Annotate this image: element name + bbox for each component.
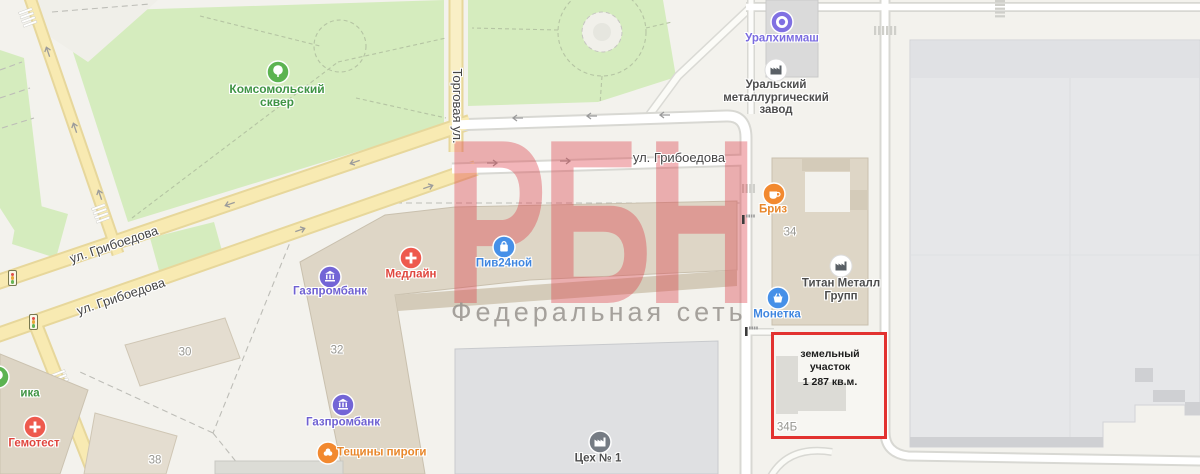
piv24-bag-icon[interactable] [492,235,516,259]
traffic-light-icon [8,270,17,286]
building-number-32: 32 [331,345,344,358]
medline-cross-icon[interactable] [399,246,423,270]
gazprombank-north-label[interactable]: Газпромбанк [293,286,367,299]
gazprombank-south-label[interactable]: Газпромбанк [306,417,380,430]
briz-label[interactable]: Бриз [759,204,787,217]
building-number-34b: 34Б [777,422,797,435]
gemotest-cross-icon[interactable] [23,415,47,439]
uralhimmash-label[interactable]: Уралхиммаш [745,33,819,46]
clinic-partial-icon[interactable] [0,365,10,389]
uralhimmash-icon[interactable] [770,10,794,34]
gazprombank-south-icon[interactable] [331,393,355,417]
titan-label[interactable]: Титан МеталлГрупп [802,277,880,302]
gemotest-label[interactable]: Гемотест [8,438,59,451]
street-label-griboedova-upper: ул. Грибоедова [68,224,160,267]
briz-cup-icon[interactable] [762,182,786,206]
land-plot-annotation: земельный участок 1 287 кв.м. [779,348,881,389]
piv24-label[interactable]: Пив24ной [476,258,532,271]
park-tree-icon[interactable] [266,60,290,84]
building-number-30: 30 [179,347,192,360]
building-number-38: 38 [149,455,162,468]
street-label-griboedova-lower: ул. Грибоедова [75,276,167,319]
map-label-layer: Комсомольскийсквер Уралхиммаш Уральскийм… [0,0,1200,474]
monetka-label[interactable]: Монетка [753,309,801,322]
land-plot-annotation-line2: 1 287 кв.м. [779,376,881,389]
traffic-light-icon [29,314,38,330]
street-label-griboedova-horizontal: ул. Грибоедова [633,151,725,165]
barrier-gate-icon [741,212,757,224]
street-label-torgovaya: Торговая ул. [450,68,464,143]
building-number-34: 34 [784,227,797,240]
clinic-partial-label[interactable]: ика [20,388,39,401]
tseh1-label[interactable]: Цех № 1 [575,453,622,466]
tseh1-factory-icon[interactable] [588,430,612,454]
ural-plant-label[interactable]: Уральскийметаллургическийзавод [723,79,829,117]
park-label-komsomolsky[interactable]: Комсомольскийсквер [229,83,324,109]
map-canvas[interactable]: РБН Федеральная сеть Комсомольскийсквер … [0,0,1200,474]
land-plot-annotation-line1: земельный участок [779,348,881,373]
monetka-basket-icon[interactable] [766,286,790,310]
teshiny-pirogi-label[interactable]: Тещины пироги [337,447,427,460]
medline-label[interactable]: Медлайн [386,269,437,282]
titan-factory-icon[interactable] [829,254,853,278]
barrier-gate-icon [744,324,760,336]
